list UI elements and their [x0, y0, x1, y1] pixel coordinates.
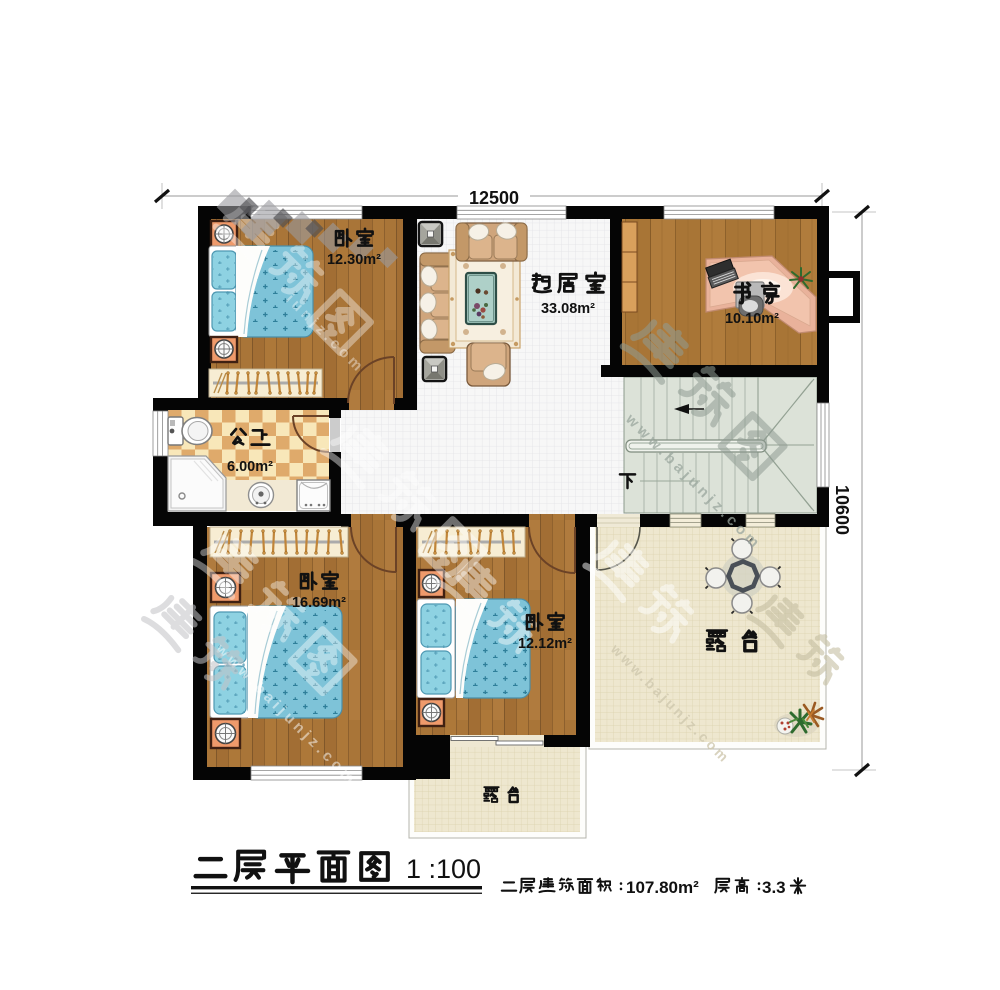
- svg-text:6.00m²: 6.00m²: [227, 459, 273, 475]
- svg-text:10.10m²: 10.10m²: [725, 311, 779, 327]
- svg-text:1 :100: 1 :100: [406, 854, 481, 884]
- svg-text:3.3: 3.3: [762, 878, 786, 897]
- svg-text:16.69m²: 16.69m²: [292, 595, 346, 611]
- svg-text:10600: 10600: [832, 485, 852, 535]
- svg-text:33.08m²: 33.08m²: [541, 301, 595, 317]
- svg-text:107.80m²: 107.80m²: [626, 878, 699, 897]
- svg-text:12.30m²: 12.30m²: [327, 252, 381, 268]
- svg-text:12.12m²: 12.12m²: [518, 636, 572, 652]
- svg-text:12500: 12500: [469, 188, 519, 208]
